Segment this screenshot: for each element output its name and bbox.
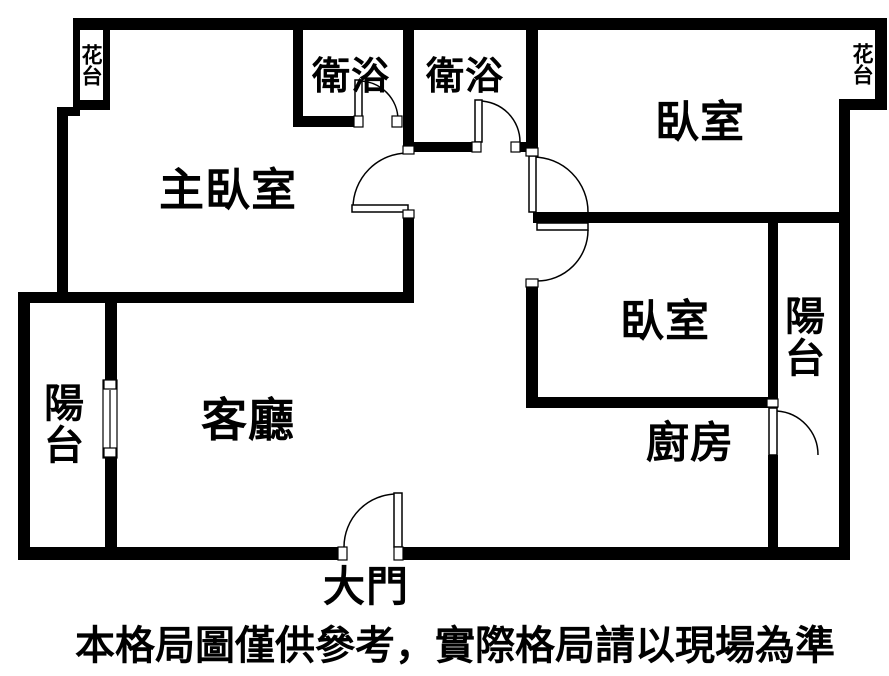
label-living-room: 客廳 bbox=[201, 396, 295, 444]
door-leaf bbox=[537, 223, 588, 230]
wall-left-outer-upper bbox=[57, 107, 68, 303]
label-kitchen: 廚房 bbox=[646, 421, 734, 466]
wall-bottom-right-of-door bbox=[402, 547, 850, 560]
label-bedroom-middle-right: 臥室 bbox=[620, 299, 710, 345]
door-leaf bbox=[529, 156, 536, 212]
wall-bath1-bottom bbox=[293, 116, 357, 127]
wall-central-lower bbox=[526, 287, 538, 397]
door-plate bbox=[526, 148, 538, 156]
wall-bedroom1-bottom bbox=[533, 212, 839, 223]
door-main-entrance bbox=[338, 493, 403, 560]
wall-bath2-bottom-left bbox=[414, 142, 475, 152]
label-master-bedroom: 主臥室 bbox=[159, 166, 297, 213]
wall-bath2-right bbox=[526, 28, 538, 148]
wall-balcony-left-divider-upper bbox=[105, 300, 117, 383]
door-bedroom-top-right bbox=[526, 148, 588, 212]
door-arc bbox=[353, 153, 408, 208]
door-plate bbox=[338, 547, 347, 560]
door-arc bbox=[533, 157, 588, 212]
door-leaf bbox=[394, 493, 402, 547]
door-arc bbox=[777, 411, 818, 455]
door-arc bbox=[479, 101, 520, 142]
wall-left-balcony-outer bbox=[18, 292, 30, 560]
wall-balcony-right-lower bbox=[768, 455, 778, 548]
floor-plan: 花台 花台 衛浴 衛浴 臥室 主臥室 臥室 陽台 陽台 客廳 廚房 大門 本格局… bbox=[0, 0, 889, 676]
door-plate bbox=[403, 210, 414, 218]
door-plate bbox=[394, 547, 403, 560]
door-arc bbox=[344, 494, 397, 547]
floor-plan-drawing bbox=[0, 0, 889, 676]
label-flower-bed-right: 花台 bbox=[851, 43, 873, 85]
wall-balcony-right-upper bbox=[768, 218, 778, 400]
wall-bottom-left-of-door bbox=[18, 547, 342, 560]
wall-bath1-left bbox=[293, 28, 303, 125]
wall-balcony-left-divider-lower bbox=[105, 456, 117, 547]
door-bathroom-right bbox=[472, 100, 520, 152]
door-leaf bbox=[769, 408, 777, 455]
wall-between-bathrooms bbox=[403, 28, 414, 154]
door-master-bedroom bbox=[352, 146, 414, 218]
window-end-plate-top bbox=[104, 380, 116, 389]
door-bedroom-middle-right bbox=[526, 223, 588, 287]
walls bbox=[18, 18, 887, 560]
balcony-left-window bbox=[103, 380, 117, 458]
label-balcony-left: 陽台 bbox=[39, 382, 81, 466]
door-leaf bbox=[352, 205, 408, 212]
door-plate bbox=[767, 399, 778, 407]
wall-flower-right-outer bbox=[875, 18, 887, 110]
wall-top bbox=[73, 18, 887, 30]
label-bedroom-top-right: 臥室 bbox=[655, 100, 745, 146]
door-plate bbox=[392, 116, 402, 127]
label-main-door: 大門 bbox=[323, 565, 409, 609]
wall-master-bottom bbox=[18, 292, 413, 303]
door-plate bbox=[354, 116, 363, 127]
window-end-plate-bottom bbox=[104, 448, 116, 457]
wall-master-door-lower bbox=[403, 218, 414, 303]
label-flower-bed-left: 花台 bbox=[80, 44, 102, 86]
door-plate bbox=[511, 142, 520, 152]
disclaimer-text: 本格局圖僅供參考，實際格局請以現場為準 bbox=[75, 625, 835, 667]
wall-kitchen-top bbox=[526, 397, 778, 408]
wall-flower-left-right bbox=[103, 18, 110, 110]
wall-right-outer bbox=[839, 99, 850, 560]
door-kitchen-balcony bbox=[767, 399, 818, 455]
door-leaf bbox=[475, 100, 482, 142]
door-plate bbox=[403, 146, 414, 154]
door-arc bbox=[537, 230, 588, 281]
door-plate bbox=[526, 279, 538, 287]
door-plate bbox=[472, 142, 481, 152]
wall-flower-left-bottom bbox=[73, 100, 110, 110]
label-bathroom-right: 衛浴 bbox=[426, 57, 504, 97]
label-bathroom-left: 衛浴 bbox=[312, 57, 390, 97]
label-balcony-right: 陽台 bbox=[780, 295, 822, 379]
